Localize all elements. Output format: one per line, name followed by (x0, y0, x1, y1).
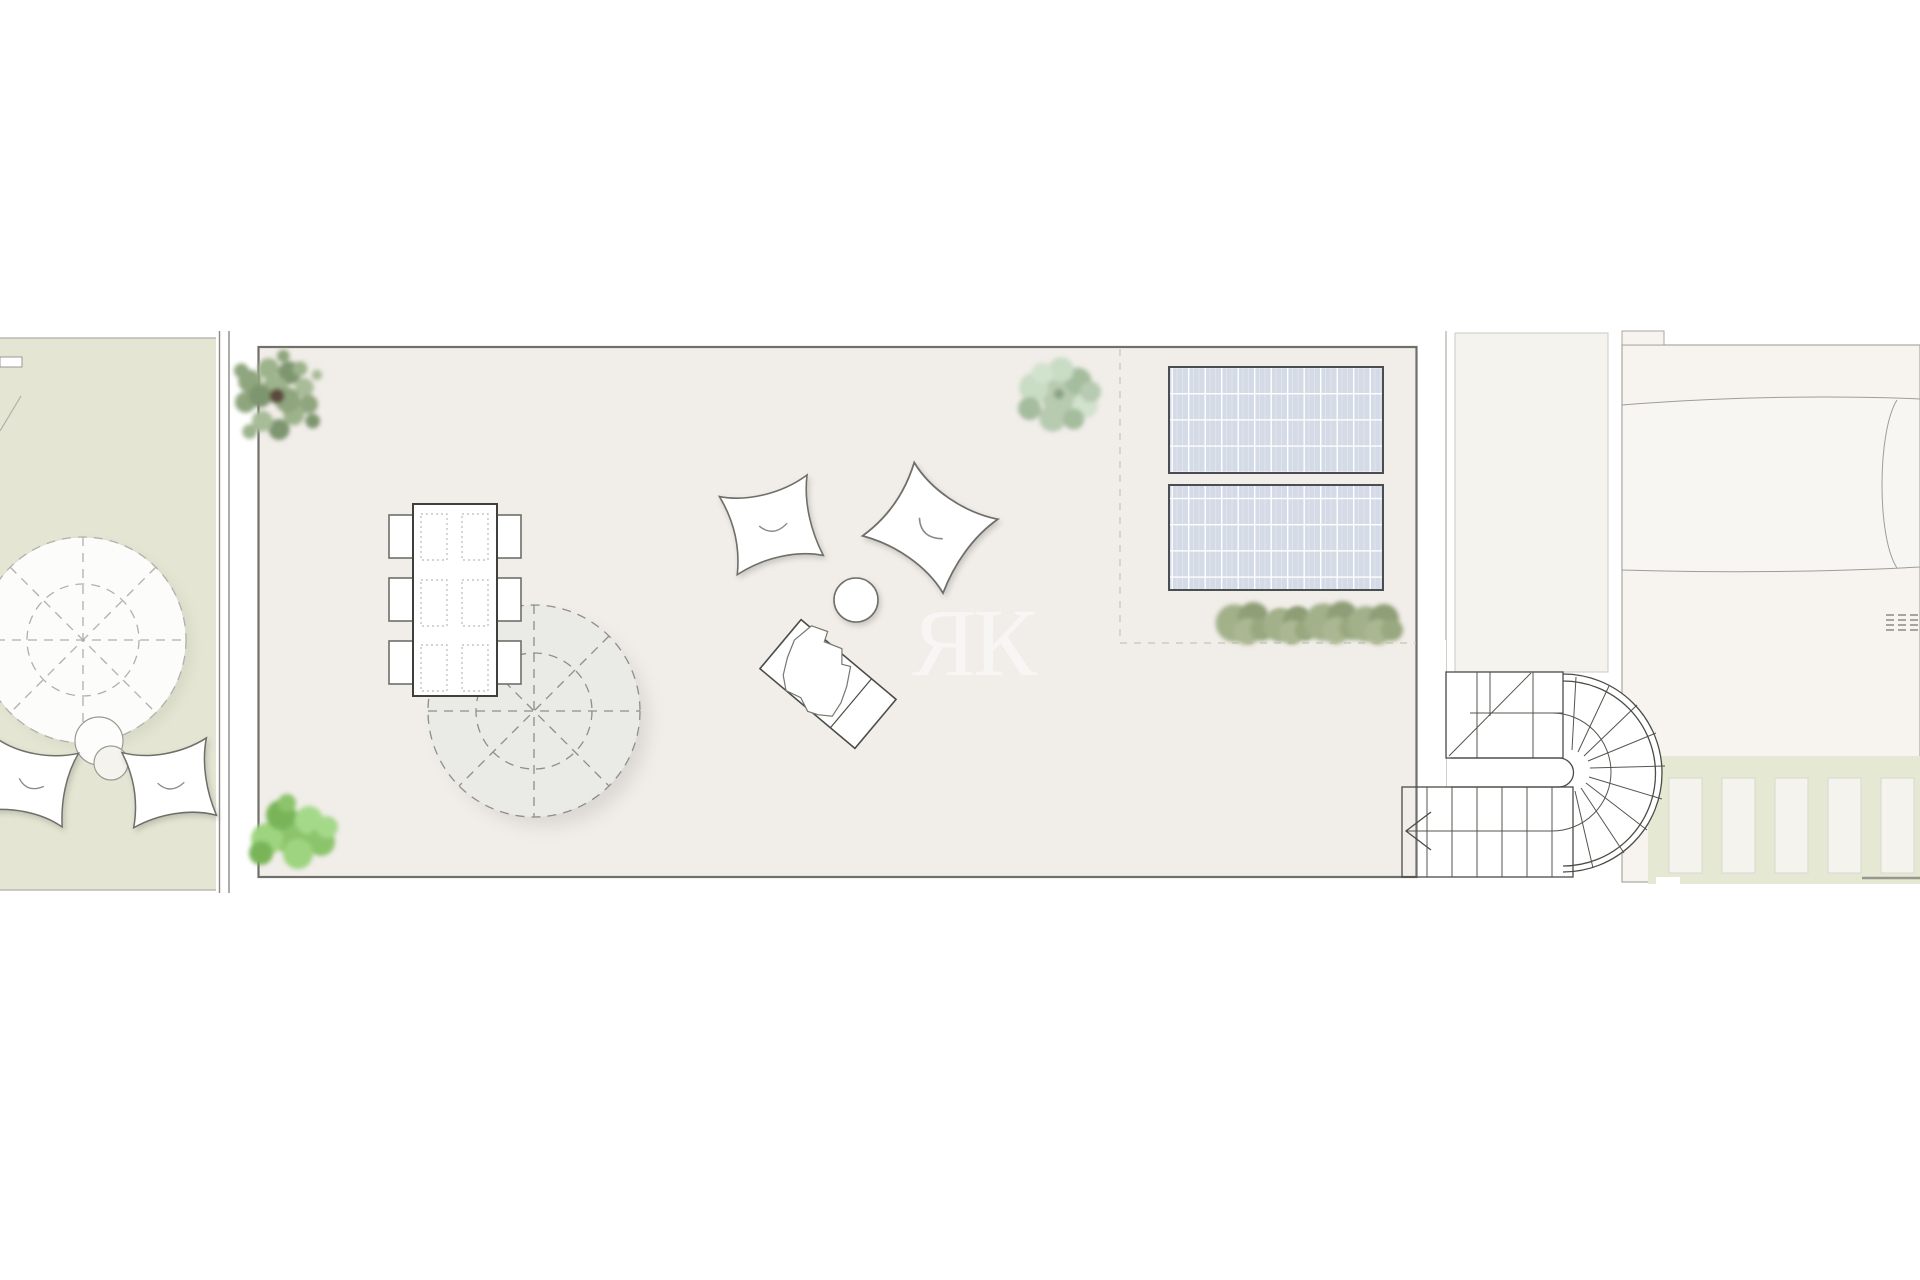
solar-panel-2 (1169, 485, 1383, 590)
stool-small (94, 746, 128, 780)
deck-plank (1722, 778, 1755, 873)
deck-plank (1881, 778, 1914, 873)
stair-side-band (1419, 640, 1446, 787)
green-walkway (1648, 756, 1920, 889)
main-terrace-area: ЯК (234, 347, 1417, 877)
dining-chair (496, 641, 521, 684)
side-table (834, 578, 878, 622)
building-notch (1622, 331, 1664, 345)
solar-panel-1 (1169, 367, 1383, 473)
left-garden-area (0, 338, 217, 890)
deck-plank (1828, 778, 1861, 873)
watermark-monogram: ЯК (912, 589, 1038, 696)
dining-chair (389, 578, 414, 621)
wall-marker-bar (0, 357, 22, 367)
shrub-tuft-icon (1348, 604, 1403, 645)
floor-plan: ЯК (0, 0, 1920, 1280)
dining-table (413, 504, 497, 696)
vault-roof-outline (1622, 397, 1920, 572)
dining-chair (389, 515, 414, 558)
dining-chair (389, 641, 414, 684)
deck-plank (1669, 778, 1702, 873)
dining-set (389, 504, 521, 696)
floor-plan-canvas: ЯК (0, 0, 1920, 1280)
walkway-step (1656, 877, 1680, 889)
corridor-area (1455, 333, 1608, 672)
dining-chair (496, 515, 521, 558)
deck-plank (1775, 778, 1808, 873)
dining-chair (496, 578, 521, 621)
